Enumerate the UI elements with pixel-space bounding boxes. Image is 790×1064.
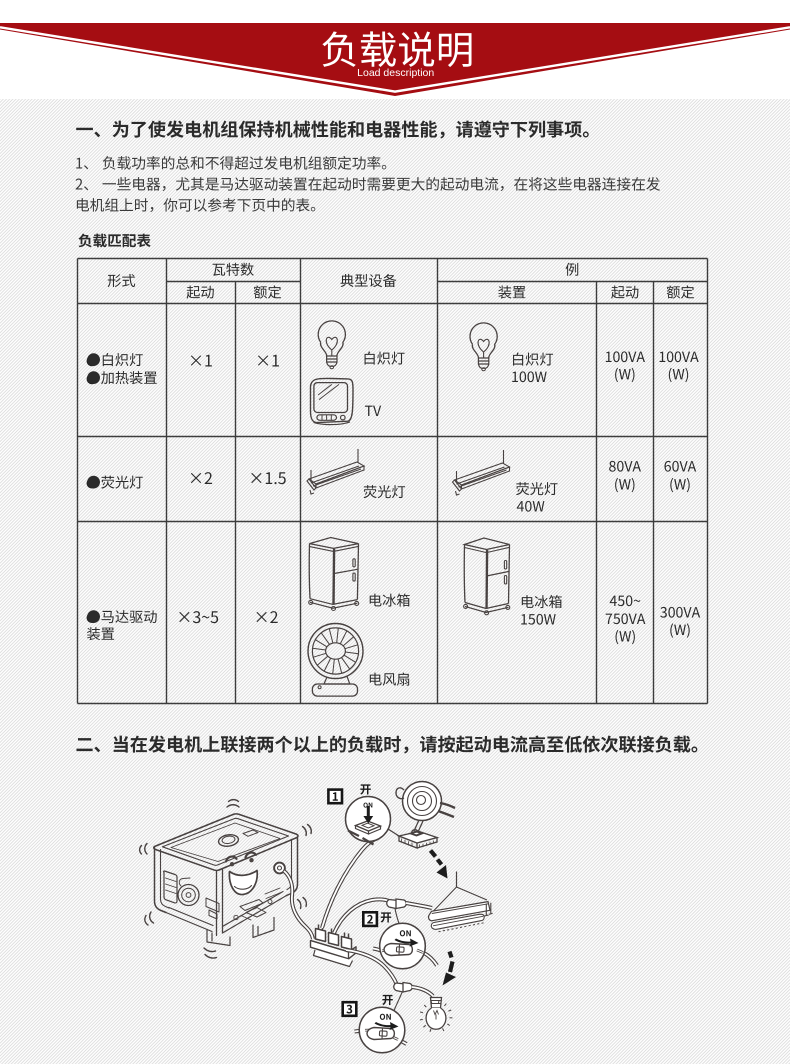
svg-text:Load description: Load description	[357, 67, 434, 79]
